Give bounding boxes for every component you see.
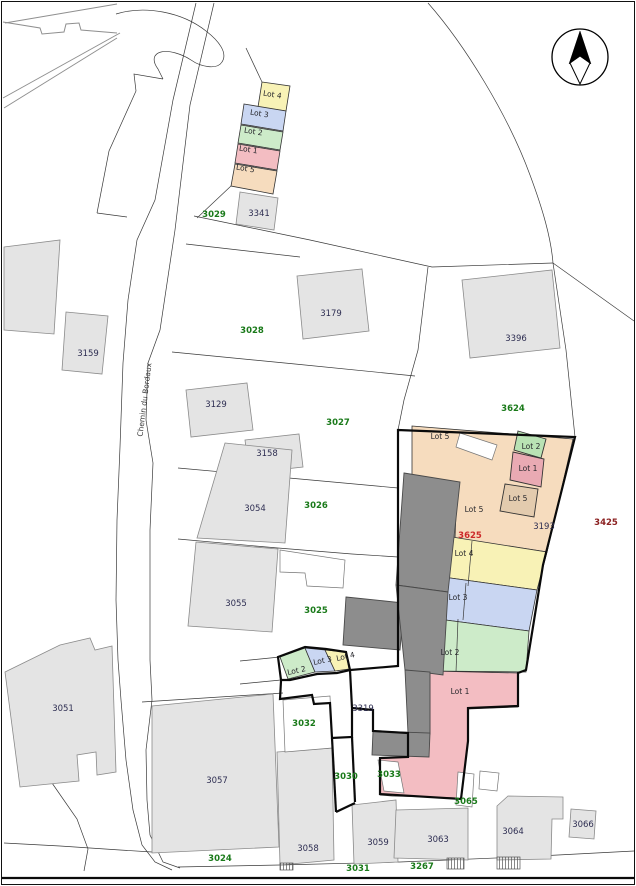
building-label-3063: 3063 bbox=[427, 835, 449, 845]
building-label-3159: 3159 bbox=[77, 349, 99, 359]
building-3396 bbox=[462, 270, 560, 358]
building-label-3059: 3059 bbox=[367, 838, 389, 848]
building-label-3396: 3396 bbox=[505, 334, 527, 344]
parcel-label-3030: 3030 bbox=[334, 772, 358, 782]
parcel-label-3029: 3029 bbox=[202, 210, 226, 220]
label-3425: 3425 bbox=[594, 518, 618, 528]
building-label-3193: 3193 bbox=[533, 522, 555, 532]
cadastral-map: 3029302830273624302630253032303030333024… bbox=[0, 0, 636, 886]
building-3055 bbox=[188, 542, 278, 632]
parcel-label-3026: 3026 bbox=[304, 501, 328, 511]
building-label-3058: 3058 bbox=[297, 844, 319, 854]
lot-label: Lot 4 bbox=[455, 549, 474, 558]
building-3159 bbox=[62, 312, 108, 374]
lot-label: Lot 2 bbox=[522, 442, 541, 451]
parcel-label-3624: 3624 bbox=[501, 404, 525, 414]
building-label-3179: 3179 bbox=[320, 309, 342, 319]
parcel-label-3027: 3027 bbox=[326, 418, 350, 428]
building-3057 bbox=[152, 694, 279, 853]
building-3063 bbox=[394, 808, 468, 860]
lot-label: Lot 2 bbox=[441, 648, 460, 657]
lot-label: Lot 1 bbox=[451, 687, 470, 696]
parcel-label-3028: 3028 bbox=[240, 326, 264, 336]
parcel-label-3024: 3024 bbox=[208, 854, 232, 864]
shed-2 bbox=[479, 771, 499, 791]
lot-label: Lot 5 bbox=[509, 494, 528, 503]
lot-label: Lot 5 bbox=[465, 505, 484, 514]
parcel-label-3065: 3065 bbox=[454, 797, 478, 807]
building-label-3051: 3051 bbox=[52, 704, 74, 714]
building-label-3064: 3064 bbox=[502, 827, 524, 837]
parcel-label-3267: 3267 bbox=[410, 862, 434, 872]
building-label-3055: 3055 bbox=[225, 599, 247, 609]
lot-label: Lot 1 bbox=[519, 464, 538, 473]
building-label-3129: 3129 bbox=[205, 400, 227, 410]
building-label-3319: 3319 bbox=[352, 704, 374, 714]
parcel-label-3031: 3031 bbox=[346, 864, 370, 874]
parcel-label-3033: 3033 bbox=[377, 770, 401, 780]
building-3179 bbox=[297, 269, 369, 339]
building-label-3054: 3054 bbox=[244, 504, 266, 514]
building-3059 bbox=[352, 800, 398, 864]
building-label-3158: 3158 bbox=[256, 449, 278, 459]
lot-label: Lot 5 bbox=[431, 432, 450, 441]
building-label-3341: 3341 bbox=[248, 209, 270, 219]
compass-north-icon bbox=[552, 29, 608, 85]
building-label-3057: 3057 bbox=[206, 776, 228, 786]
label-3625: 3625 bbox=[458, 531, 482, 541]
parcel-label-3025: 3025 bbox=[304, 606, 328, 616]
parcel-label-3032: 3032 bbox=[292, 719, 316, 729]
lot-label: Lot 3 bbox=[449, 593, 468, 602]
building-label-3066: 3066 bbox=[572, 820, 594, 830]
building-3129 bbox=[186, 383, 253, 437]
building-top-left bbox=[4, 240, 60, 334]
